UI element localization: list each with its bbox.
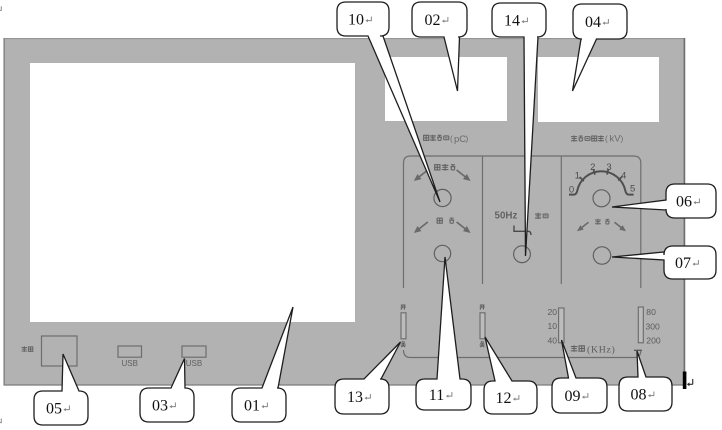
svg-text:(KHz): (KHz) [587, 345, 616, 356]
svg-text:200: 200 [646, 335, 661, 345]
svg-text:08: 08 [631, 387, 647, 404]
svg-text:14: 14 [504, 13, 520, 30]
svg-text:1: 1 [575, 170, 580, 181]
svg-text:2: 2 [590, 162, 595, 173]
svg-text:10: 10 [547, 321, 557, 331]
svg-text:12: 12 [496, 390, 512, 407]
svg-text:03: 03 [152, 398, 168, 415]
svg-text:80: 80 [646, 307, 656, 317]
svg-text:300: 300 [646, 321, 661, 331]
svg-text:3: 3 [606, 162, 611, 173]
svg-text:(: ( [450, 135, 453, 144]
svg-text:): ) [621, 135, 624, 144]
svg-text:20: 20 [547, 307, 557, 317]
svg-text:07: 07 [675, 255, 691, 272]
svg-text:5: 5 [630, 184, 635, 195]
svg-text:09: 09 [565, 388, 581, 405]
svg-text:kV: kV [610, 134, 622, 145]
svg-text:01: 01 [244, 398, 260, 415]
svg-text:40: 40 [547, 336, 557, 346]
svg-text:05: 05 [46, 401, 62, 418]
svg-text:13: 13 [347, 389, 363, 406]
svg-text:10: 10 [348, 12, 364, 29]
svg-text:02: 02 [425, 12, 441, 29]
svg-text:USB: USB [186, 359, 202, 368]
svg-text:06: 06 [676, 194, 692, 211]
svg-text:4: 4 [621, 170, 626, 181]
svg-text:50Hz: 50Hz [495, 211, 518, 222]
svg-text:pC: pC [454, 134, 466, 145]
svg-text:): ) [466, 135, 469, 144]
svg-text:(: ( [605, 135, 608, 144]
svg-text:11: 11 [429, 387, 444, 404]
svg-text:04: 04 [585, 14, 601, 31]
svg-text:USB: USB [121, 359, 137, 368]
svg-text:0: 0 [569, 184, 574, 195]
